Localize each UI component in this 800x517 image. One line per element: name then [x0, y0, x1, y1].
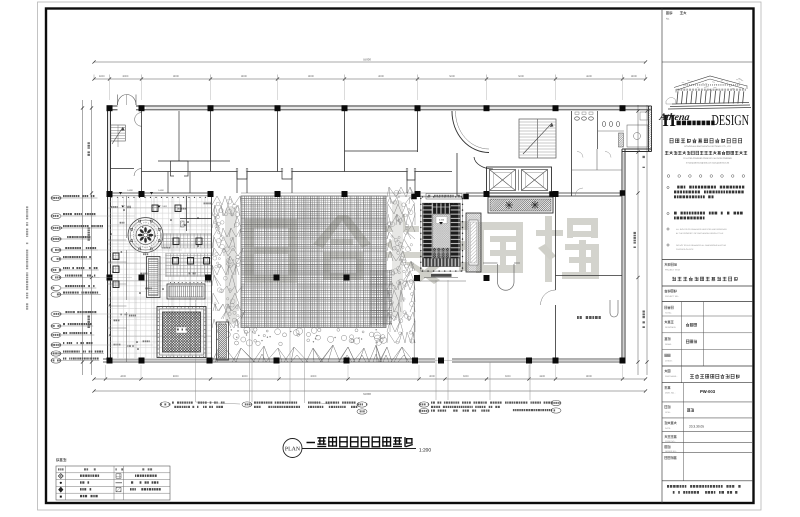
- svg-text:55000: 55000: [363, 58, 371, 62]
- svg-text:5.340: 5.340: [439, 219, 445, 222]
- svg-text:8000: 8000: [173, 75, 179, 78]
- svg-text:TEL:0769-22508180 22506767: TEL:0769-22508180 22506767 FAX:0769-2250…: [683, 157, 732, 160]
- svg-text:8000: 8000: [631, 75, 637, 78]
- svg-text:5.800: 5.800: [127, 189, 133, 192]
- svg-text:8000: 8000: [308, 75, 314, 78]
- svg-text:PROJECT ITEM:: PROJECT ITEM:: [665, 269, 681, 272]
- svg-text:20.3.30.05: 20.3.30.05: [689, 425, 704, 429]
- svg-text:CHECK:: CHECK:: [665, 359, 673, 362]
- svg-text:1:200: 1:200: [419, 448, 431, 454]
- svg-text:No.: No.: [666, 18, 670, 21]
- svg-text:DESIGN: DESIGN: [712, 113, 750, 129]
- svg-text:PROJECT NO.:: PROJECT NO.:: [665, 295, 679, 298]
- svg-text:BY THE PROPERTY OF PARTHENON D: BY THE PROPERTY OF PARTHENON DESIGN STYL…: [676, 232, 724, 235]
- svg-text:SCAL:: SCAL:: [665, 411, 671, 414]
- svg-text:DRAW:: DRAW:: [665, 343, 672, 346]
- svg-text:3600: 3600: [586, 75, 592, 78]
- svg-text:TOTAL:: TOTAL:: [665, 312, 672, 315]
- svg-text:5000: 5000: [449, 75, 455, 78]
- svg-text:55000: 55000: [363, 392, 371, 396]
- svg-text:3600: 3600: [539, 375, 545, 378]
- svg-text:8000: 8000: [586, 375, 592, 378]
- svg-text:8000: 8000: [241, 75, 247, 78]
- svg-text:DO NOT SCALE DRAWINGS ALL DIME: DO NOT SCALE DRAWINGS ALL DIMENSIONS MUS…: [676, 244, 727, 247]
- svg-text:ALL RIGHTS OF DRAWINGS INDICAT: ALL RIGHTS OF DRAWINGS INDICATED ARE RES…: [676, 228, 727, 231]
- svg-text:DATE:: DATE:: [665, 427, 671, 430]
- svg-text:5000: 5000: [518, 75, 524, 78]
- svg-text:CHECKED ON SITE: CHECKED ON SITE: [676, 248, 694, 251]
- svg-text:PW-003: PW-003: [700, 389, 716, 394]
- svg-text:8000: 8000: [242, 375, 248, 378]
- svg-text:4000: 4000: [120, 375, 126, 378]
- svg-text:5000: 5000: [505, 375, 511, 378]
- svg-text:DWG.NAME.:: DWG.NAME.:: [665, 375, 678, 378]
- svg-text:3000: 3000: [378, 75, 384, 78]
- svg-text:8000: 8000: [123, 75, 129, 78]
- svg-text:6000: 6000: [99, 75, 105, 78]
- svg-text:8000: 8000: [311, 375, 317, 378]
- svg-text:8000: 8000: [173, 375, 179, 378]
- svg-text:PLAN: PLAN: [285, 446, 301, 452]
- svg-text:DWG. NO. :: DWG. NO. :: [665, 392, 676, 395]
- svg-text:DESIGNER:: DESIGNER:: [665, 326, 676, 329]
- svg-text:5000: 5000: [463, 375, 469, 378]
- svg-text:e-mail:parthenon@163.com www: e-mail:parthenon@163.com www.parthenon.h…: [686, 161, 730, 164]
- svg-text:5.800: 5.800: [158, 189, 164, 192]
- svg-text:DONGGUAN PARTHENON DECORATE CO: DONGGUAN PARTHENON DECORATE CO., LTD: [684, 145, 731, 148]
- svg-text:3000: 3000: [429, 375, 435, 378]
